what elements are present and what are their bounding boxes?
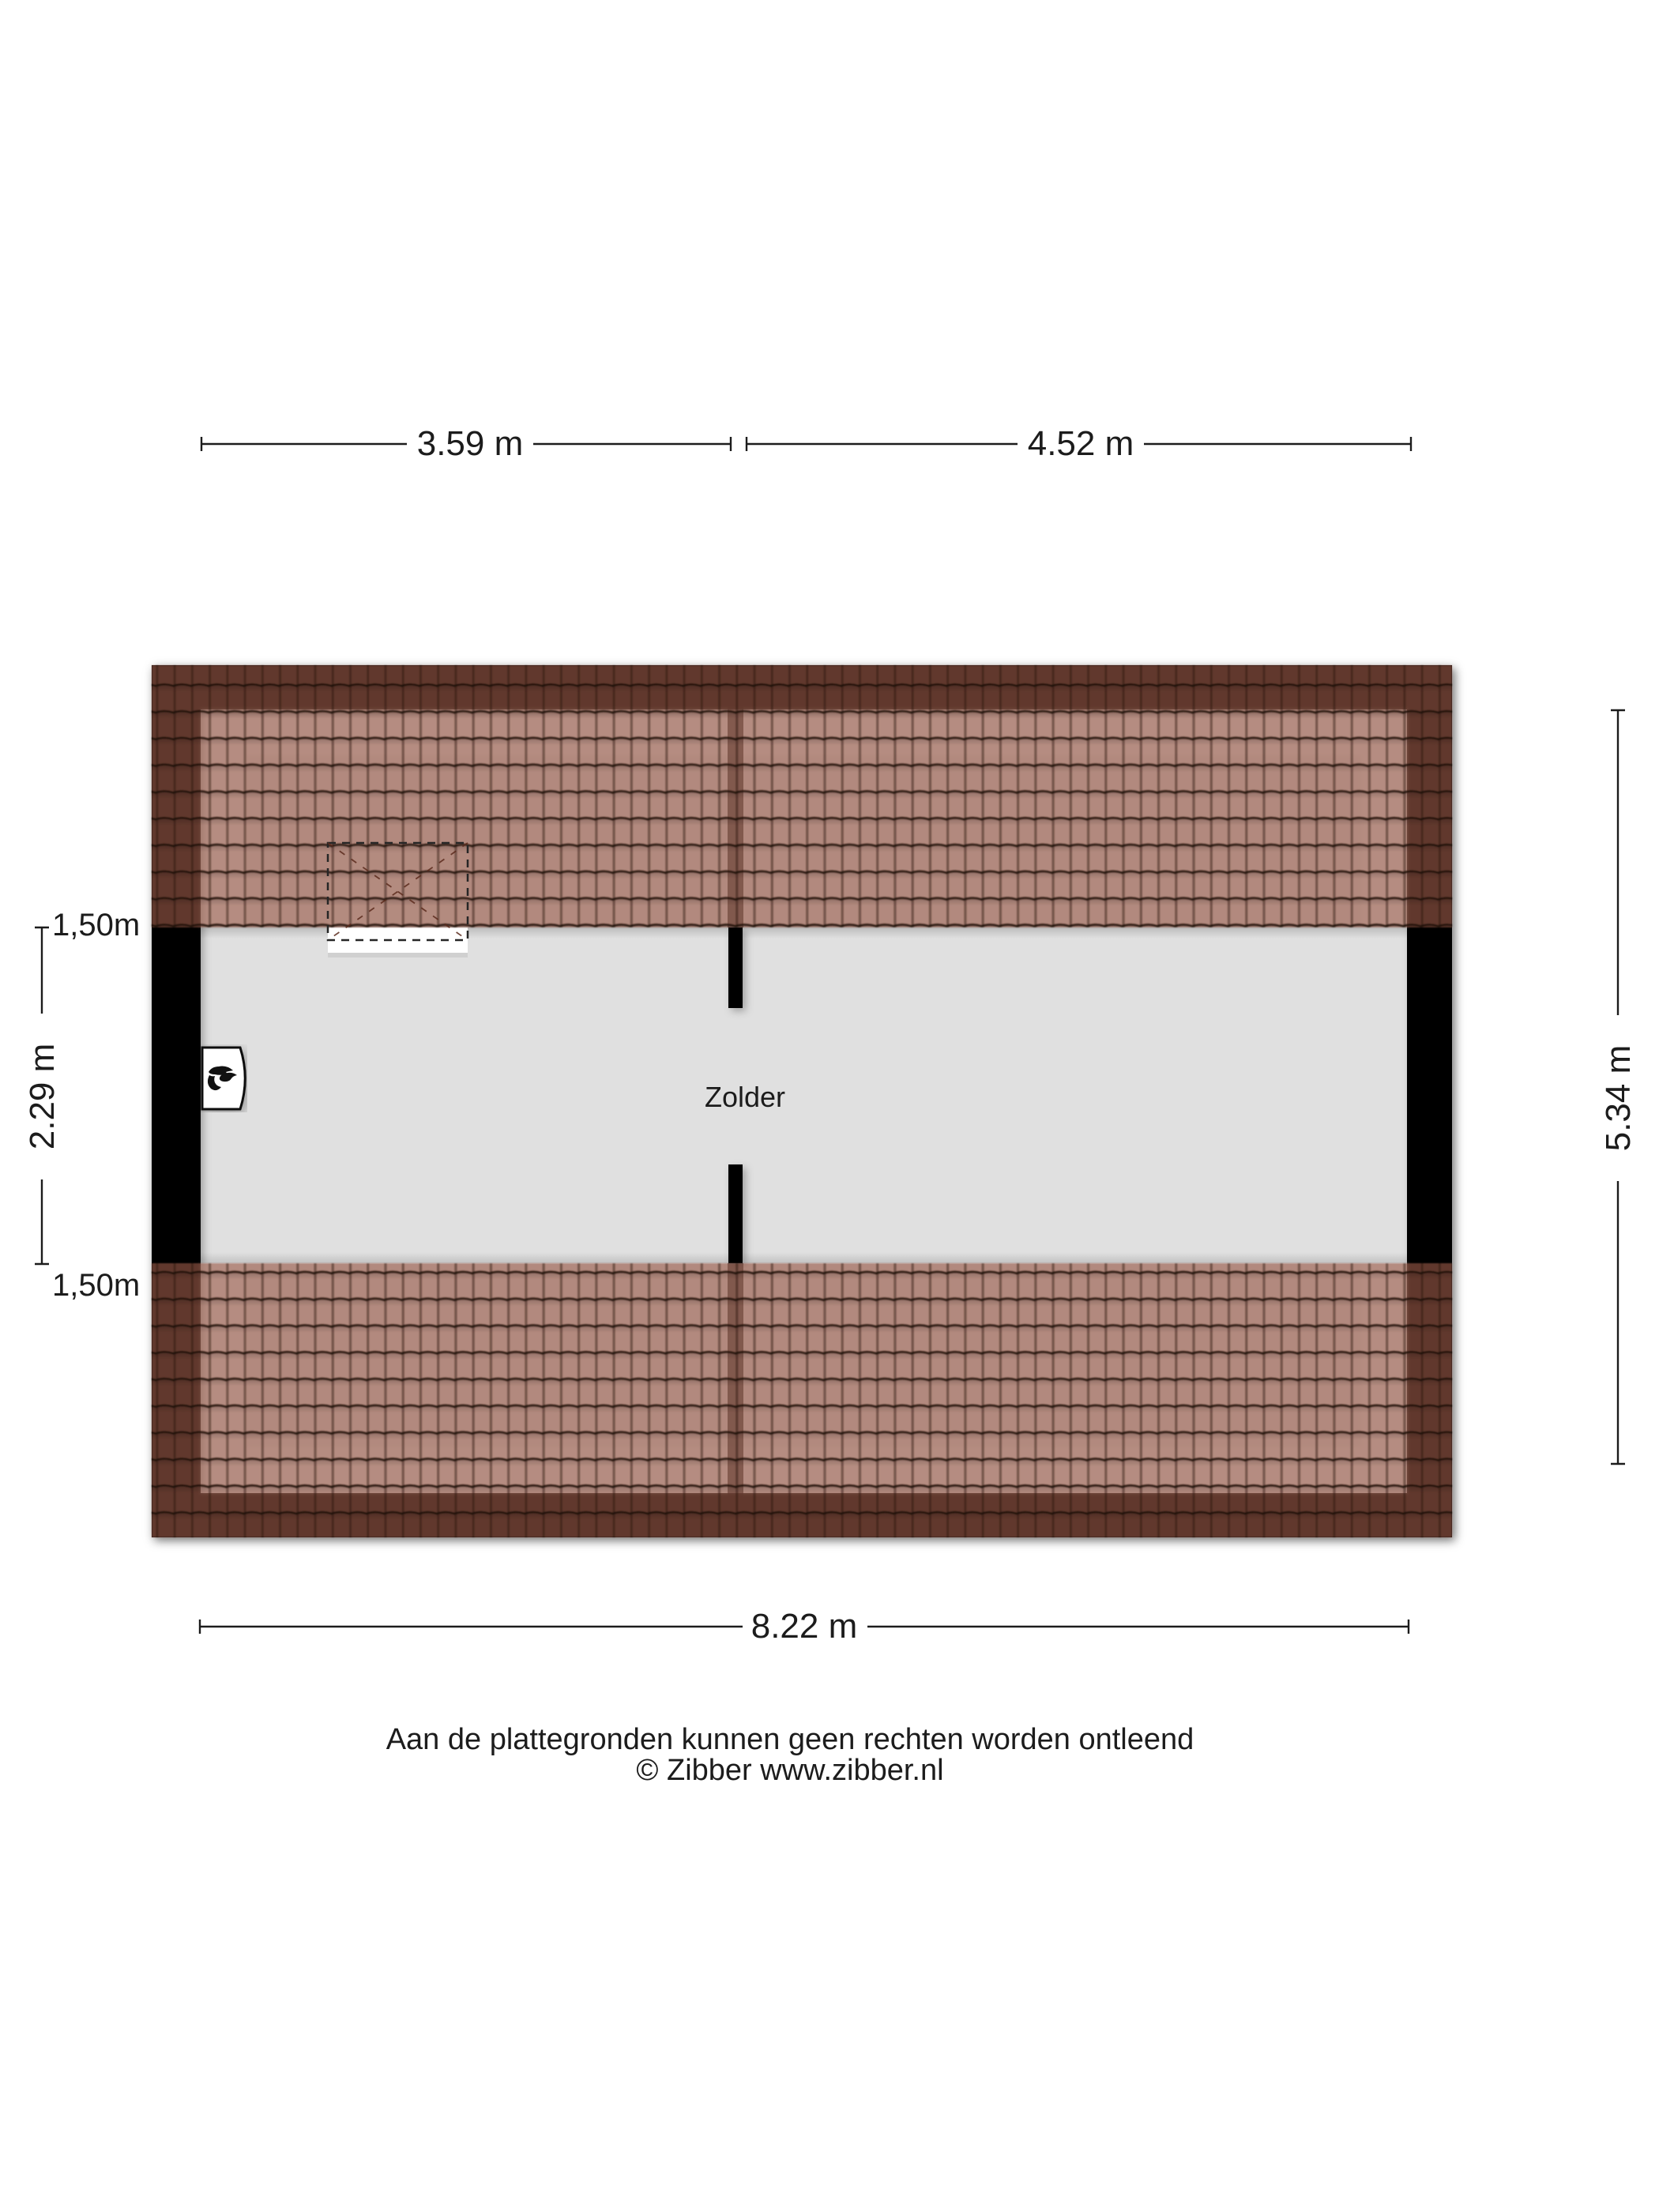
- svg-text:Aan de plattegronden kunnen ge: Aan de plattegronden kunnen geen rechten…: [386, 1723, 1194, 1756]
- svg-text:2.29 m: 2.29 m: [23, 1044, 62, 1150]
- svg-text:3.59 m: 3.59 m: [417, 424, 524, 463]
- svg-text:1,50m: 1,50m: [52, 1268, 140, 1303]
- svg-text:© Zibber www.zibber.nl: © Zibber www.zibber.nl: [636, 1754, 943, 1787]
- svg-text:4.52 m: 4.52 m: [1028, 424, 1134, 463]
- svg-text:1,50m: 1,50m: [52, 908, 140, 942]
- svg-text:Zolder: Zolder: [705, 1081, 785, 1113]
- svg-text:8.22 m: 8.22 m: [751, 1607, 858, 1646]
- svg-text:5.34 m: 5.34 m: [1599, 1045, 1638, 1152]
